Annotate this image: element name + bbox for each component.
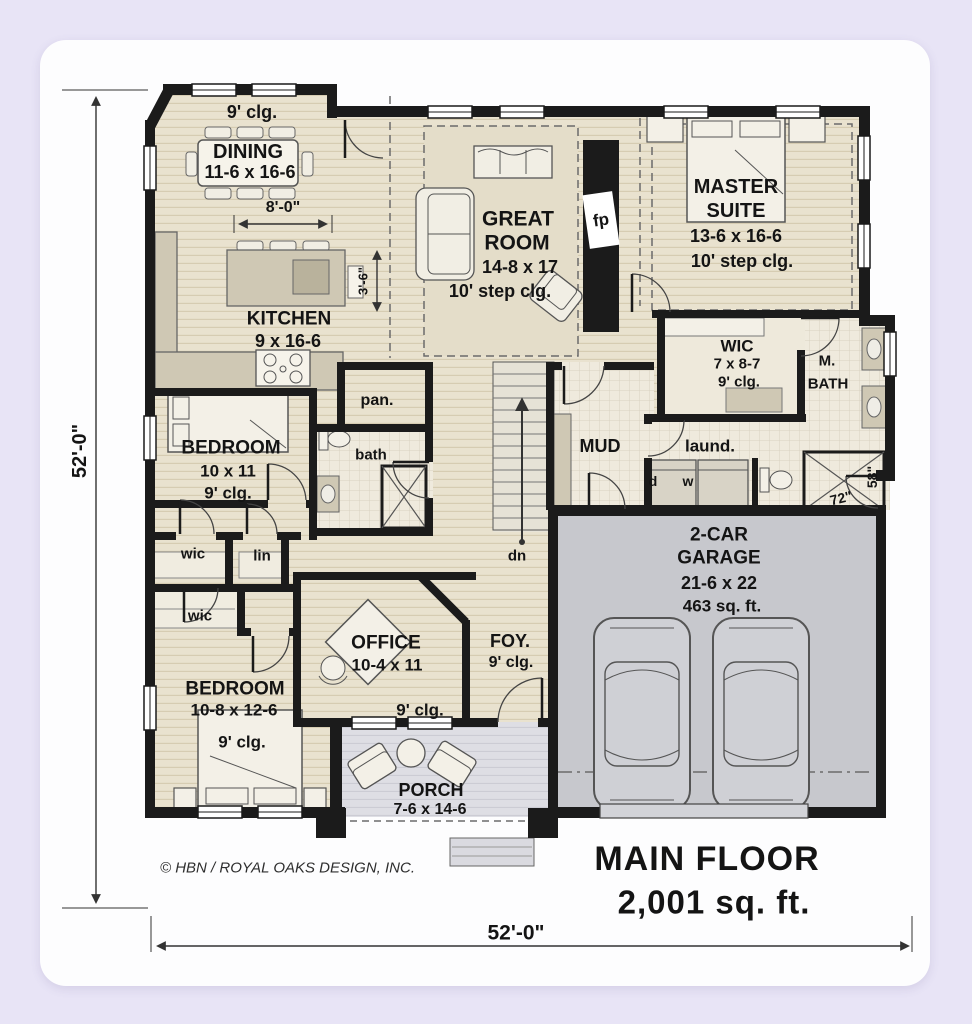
dining-width-dim-label: 8'-0" — [266, 200, 301, 216]
master-bath-name-line1-label: M. — [819, 354, 836, 369]
office-size-label: 10-4 x 11 — [352, 657, 423, 674]
floor-plan: 52'-0" 52'-0" 9' clg. DINING 11-6 x 16-6… — [0, 0, 972, 1024]
dryer-label: d — [649, 474, 658, 488]
bath-name-label: bath — [355, 448, 387, 463]
walkway-dim-label: 3'-6" — [357, 267, 370, 295]
master-suite-size-label: 13-6 x 16-6 — [690, 227, 782, 245]
washer-label: w — [683, 474, 694, 488]
bedroom1-size-label: 10 x 11 — [200, 463, 256, 480]
dining-name-label: DINING — [213, 142, 283, 162]
floor-plan-drawing — [0, 0, 972, 1024]
kitchen-name-label: KITCHEN — [247, 310, 331, 329]
porch-size-label: 7-6 x 14-6 — [394, 802, 467, 818]
stairs-down-label: dn — [508, 549, 526, 564]
garage-size-label: 21-6 x 22 — [681, 574, 757, 592]
great-room-name-line1-label: GREAT — [482, 209, 554, 230]
master-wic-ceiling-label: 9' clg. — [718, 375, 760, 390]
dining-size-label: 11-6 x 16-6 — [204, 163, 295, 181]
shower-depth-dim-label: 58" — [865, 466, 879, 488]
garage-area-label: 463 sq. ft. — [683, 598, 761, 615]
foyer-ceiling-label: 9' clg. — [489, 655, 534, 671]
great-room-size-label: 14-8 x 17 — [482, 258, 558, 276]
garage-name-line1-label: 2-CAR — [690, 526, 748, 545]
left-dimension-label: 52'-0" — [70, 424, 90, 478]
bedroom2-ceiling-label: 9' clg. — [218, 734, 266, 751]
foyer-name-label: FOY. — [490, 632, 530, 650]
car-icon — [594, 618, 690, 810]
master-suite-ceiling-label: 10' step clg. — [691, 252, 793, 270]
bedroom2-size-label: 10-8 x 12-6 — [191, 702, 278, 719]
kitchen-island — [227, 241, 363, 306]
master-suite-name-line1-label: MASTER — [694, 177, 778, 197]
car-icon — [713, 618, 809, 810]
master-wic-name-label: WIC — [720, 338, 753, 355]
garage-name-line2-label: GARAGE — [677, 549, 760, 568]
bottom-dimension-label: 52'-0" — [488, 923, 545, 944]
fireplace — [582, 140, 619, 332]
mud-name-label: MUD — [580, 437, 621, 455]
plan-title: MAIN FLOOR — [594, 842, 819, 876]
office-name-label: OFFICE — [351, 634, 421, 653]
laundry-name-label: laund. — [685, 438, 735, 455]
great-room-name-line2-label: ROOM — [484, 233, 549, 254]
copyright-text: © HBN / ROYAL OAKS DESIGN, INC. — [160, 860, 415, 877]
wic2-name-label: wic — [188, 609, 212, 624]
porch-name-label: PORCH — [398, 781, 463, 799]
wic1-name-label: wic — [181, 547, 205, 562]
master-suite-name-line2-label: SUITE — [707, 201, 766, 221]
plan-area: 2,001 sq. ft. — [618, 886, 811, 919]
master-bath-name-line2-label: BATH — [808, 377, 849, 392]
master-wic-size-label: 7 x 8-7 — [714, 357, 761, 372]
pantry-name-label: pan. — [361, 393, 394, 409]
bedroom1-name-label: BEDROOM — [181, 439, 280, 458]
linen-name-label: lin — [253, 549, 271, 564]
great-room-ceiling-label: 10' step clg. — [449, 282, 551, 300]
fireplace-label: fp — [592, 210, 610, 229]
stairs — [493, 362, 554, 545]
bedroom2-name-label: BEDROOM — [185, 680, 284, 699]
garage-door — [600, 804, 808, 818]
kitchen-size-label: 9 x 16-6 — [255, 332, 321, 350]
dining-ceiling-label: 9' clg. — [227, 103, 277, 121]
bedroom1-ceiling-label: 9' clg. — [204, 485, 252, 502]
office-ceiling-label: 9' clg. — [396, 702, 444, 719]
